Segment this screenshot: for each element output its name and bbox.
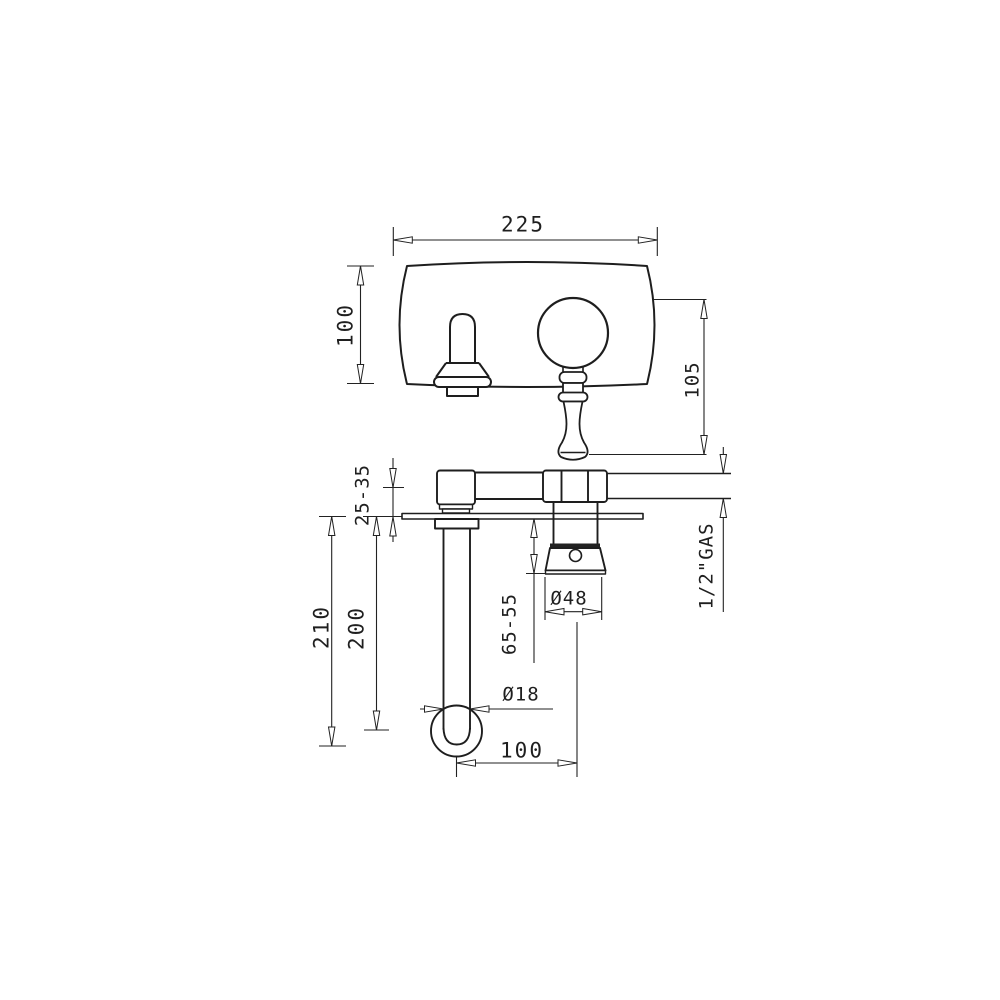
front-handle-lever [558, 402, 587, 460]
plan-connecting-tube [475, 473, 543, 500]
dim-label-plate-height: 100 [336, 303, 357, 347]
plan-lever-end [570, 550, 582, 562]
dim-spout-drop [363, 517, 404, 731]
faucet-technical-drawing [0, 0, 1000, 1000]
technical-drawing-canvas: 225 100 105 25-35 210 200 65-55 Ø48 Ø18 … [0, 0, 1000, 1000]
dim-label-escutcheon-diameter: Ø48 [550, 590, 587, 609]
dim-label-handle-length: 105 [684, 361, 703, 398]
dim-label-spout-drop: 200 [347, 606, 368, 650]
dim-label-trim-depth: 65-55 [501, 593, 520, 655]
dim-label-plate-width: 225 [501, 215, 545, 236]
dim-label-wall-depth: 25-35 [354, 464, 373, 526]
front-view [400, 262, 655, 460]
plan-spout-flange [435, 519, 479, 529]
plan-spout-collar-2 [443, 509, 470, 513]
dim-label-spout-drop-max: 210 [312, 605, 333, 649]
plan-spout-block [437, 471, 475, 505]
dim-label-thread: 1/2"GAS [698, 522, 717, 609]
dim-label-spout-projection: 100 [500, 741, 544, 762]
plan-supply-pipe [607, 474, 731, 499]
plan-valve-body [543, 471, 607, 503]
plan-spout-ball-tip [431, 706, 482, 757]
dim-label-spout-tube-diameter: Ø18 [502, 686, 539, 705]
plan-view [402, 471, 731, 757]
front-handle-ball [538, 298, 608, 368]
front-wall-plate [400, 262, 655, 387]
